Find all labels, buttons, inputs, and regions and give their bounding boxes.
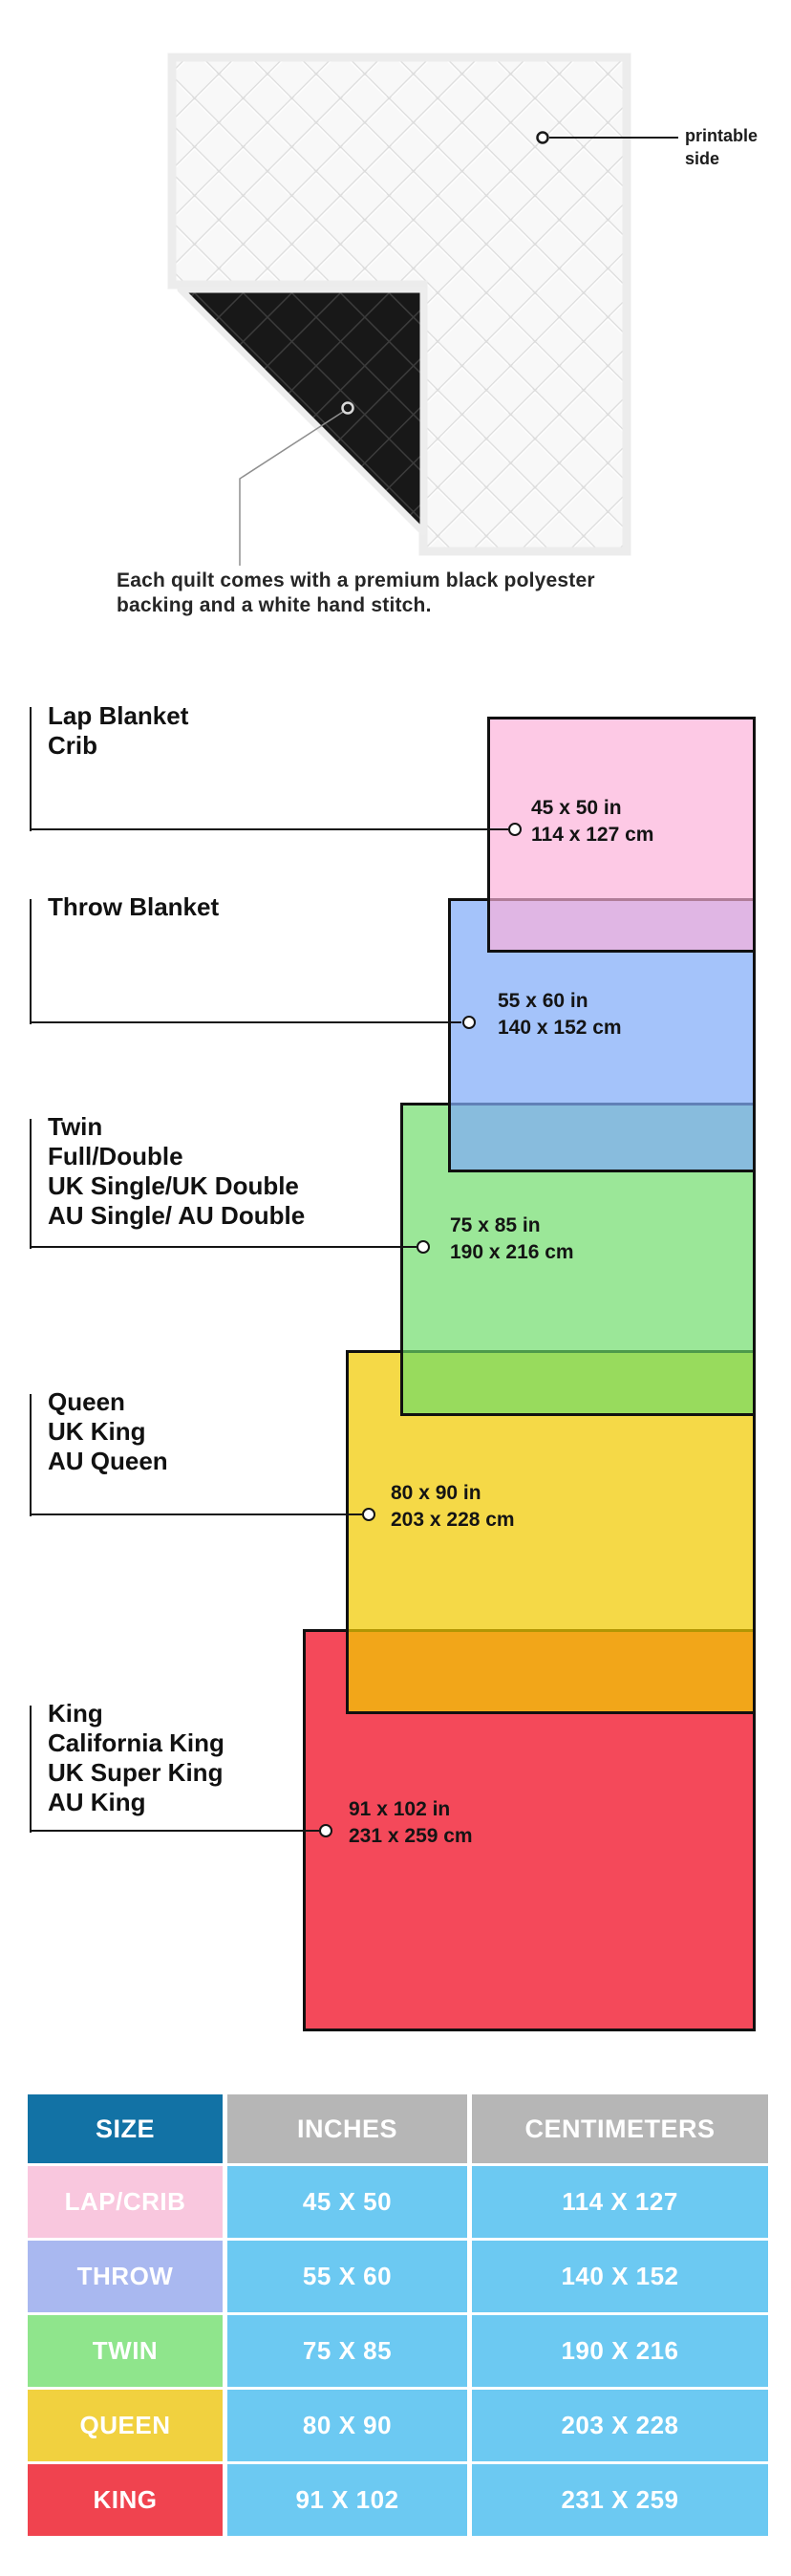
queen-marker xyxy=(362,1508,375,1521)
table-row-throw-inches: 55 X 60 xyxy=(227,2241,467,2312)
size-label-twin-line4: AU Single/ AU Double xyxy=(48,1201,305,1231)
queen-leader-line xyxy=(30,1513,362,1515)
table-row-lap-size: LAP/CRIB xyxy=(28,2166,223,2238)
quilt-size-chart-infographic: printable side Each quilt comes with a p… xyxy=(0,0,791,2576)
queen-dimensions-cm: 203 x 228 cm xyxy=(391,1507,515,1534)
size-label-queen: Queen UK King AU Queen xyxy=(48,1387,168,1476)
size-label-lap-line2: Crib xyxy=(48,731,188,761)
table-row-lap-cm: 114 X 127 xyxy=(472,2166,768,2238)
backing-caption-line2: backing and a white hand stitch. xyxy=(117,593,595,618)
queen-dimensions-inches: 80 x 90 in xyxy=(391,1480,515,1507)
lap-marker xyxy=(508,823,522,836)
table-row-throw-cm: 140 X 152 xyxy=(472,2241,768,2312)
size-label-twin-line2: Full/Double xyxy=(48,1142,305,1171)
twin-dimensions-cm: 190 x 216 cm xyxy=(450,1239,574,1266)
king-dimensions: 91 x 102 in 231 x 259 cm xyxy=(349,1796,473,1850)
size-label-king-line4: AU King xyxy=(48,1788,224,1817)
twin-bracket-line xyxy=(30,1119,32,1249)
twin-leader-line xyxy=(30,1246,417,1248)
printable-side-marker xyxy=(538,133,548,143)
table-header-inches: INCHES xyxy=(227,2094,467,2163)
printable-side-label: printable side xyxy=(685,124,758,170)
size-label-king-line1: King xyxy=(48,1699,224,1728)
table-row-king-inches: 91 X 102 xyxy=(227,2464,467,2536)
king-marker xyxy=(319,1824,332,1837)
size-label-king: King California King UK Super King AU Ki… xyxy=(48,1699,224,1817)
twin-marker xyxy=(417,1240,430,1254)
king-bracket-line xyxy=(30,1706,32,1833)
table-row-king-cm: 231 X 259 xyxy=(472,2464,768,2536)
queen-bracket-line xyxy=(30,1394,32,1516)
king-leader-line xyxy=(30,1830,319,1832)
size-label-queen-line2: UK King xyxy=(48,1417,168,1447)
table-row-throw-size: THROW xyxy=(28,2241,223,2312)
throw-bracket-line xyxy=(30,899,32,1024)
table-row-queen-cm: 203 X 228 xyxy=(472,2390,768,2461)
table-row-twin-inches: 75 X 85 xyxy=(227,2315,467,2387)
lap-bracket-line xyxy=(30,707,32,831)
table-row-twin-size: TWIN xyxy=(28,2315,223,2387)
table-header-centimeters: CENTIMETERS xyxy=(472,2094,768,2163)
size-label-lap: Lap Blanket Crib xyxy=(48,701,188,761)
size-label-twin-line3: UK Single/UK Double xyxy=(48,1171,305,1201)
backing-caption-line1: Each quilt comes with a premium black po… xyxy=(117,569,595,593)
lap-dimensions-inches: 45 x 50 in xyxy=(531,795,653,822)
backing-caption: Each quilt comes with a premium black po… xyxy=(117,569,595,618)
size-label-throw: Throw Blanket xyxy=(48,892,219,922)
table-header-size: SIZE xyxy=(28,2094,223,2163)
throw-dimensions: 55 x 60 in 140 x 152 cm xyxy=(498,988,622,1041)
queen-dimensions: 80 x 90 in 203 x 228 cm xyxy=(391,1480,515,1534)
table-row-queen-inches: 80 X 90 xyxy=(227,2390,467,2461)
table-row-king-size: KING xyxy=(28,2464,223,2536)
throw-leader-line xyxy=(30,1021,461,1023)
size-label-queen-line3: AU Queen xyxy=(48,1447,168,1476)
twin-dimensions-inches: 75 x 85 in xyxy=(450,1213,574,1239)
size-label-twin-line1: Twin xyxy=(48,1112,305,1142)
throw-dimensions-inches: 55 x 60 in xyxy=(498,988,622,1015)
table-row-lap-inches: 45 X 50 xyxy=(227,2166,467,2238)
table-row-queen-size: QUEEN xyxy=(28,2390,223,2461)
quilt-illustration xyxy=(0,0,791,631)
lap-leader-line xyxy=(30,828,508,830)
lap-dimensions: 45 x 50 in 114 x 127 cm xyxy=(531,795,653,848)
king-dimensions-inches: 91 x 102 in xyxy=(349,1796,473,1823)
twin-dimensions: 75 x 85 in 190 x 216 cm xyxy=(450,1213,574,1266)
size-label-king-line2: California King xyxy=(48,1728,224,1758)
lap-dimensions-cm: 114 x 127 cm xyxy=(531,822,653,848)
size-label-queen-line1: Queen xyxy=(48,1387,168,1417)
size-label-twin: Twin Full/Double UK Single/UK Double AU … xyxy=(48,1112,305,1231)
printable-side-label-line2: side xyxy=(685,147,758,170)
throw-marker xyxy=(462,1016,476,1029)
size-label-lap-line1: Lap Blanket xyxy=(48,701,188,731)
table-row-twin-cm: 190 X 216 xyxy=(472,2315,768,2387)
size-label-king-line3: UK Super King xyxy=(48,1758,224,1788)
quilt-black-back-corner xyxy=(181,290,423,532)
king-dimensions-cm: 231 x 259 cm xyxy=(349,1823,473,1850)
size-table: SIZE INCHES CENTIMETERS LAP/CRIB 45 X 50… xyxy=(28,2094,768,2536)
throw-dimensions-cm: 140 x 152 cm xyxy=(498,1015,622,1041)
printable-side-label-line1: printable xyxy=(685,124,758,147)
size-label-throw-line1: Throw Blanket xyxy=(48,892,219,922)
